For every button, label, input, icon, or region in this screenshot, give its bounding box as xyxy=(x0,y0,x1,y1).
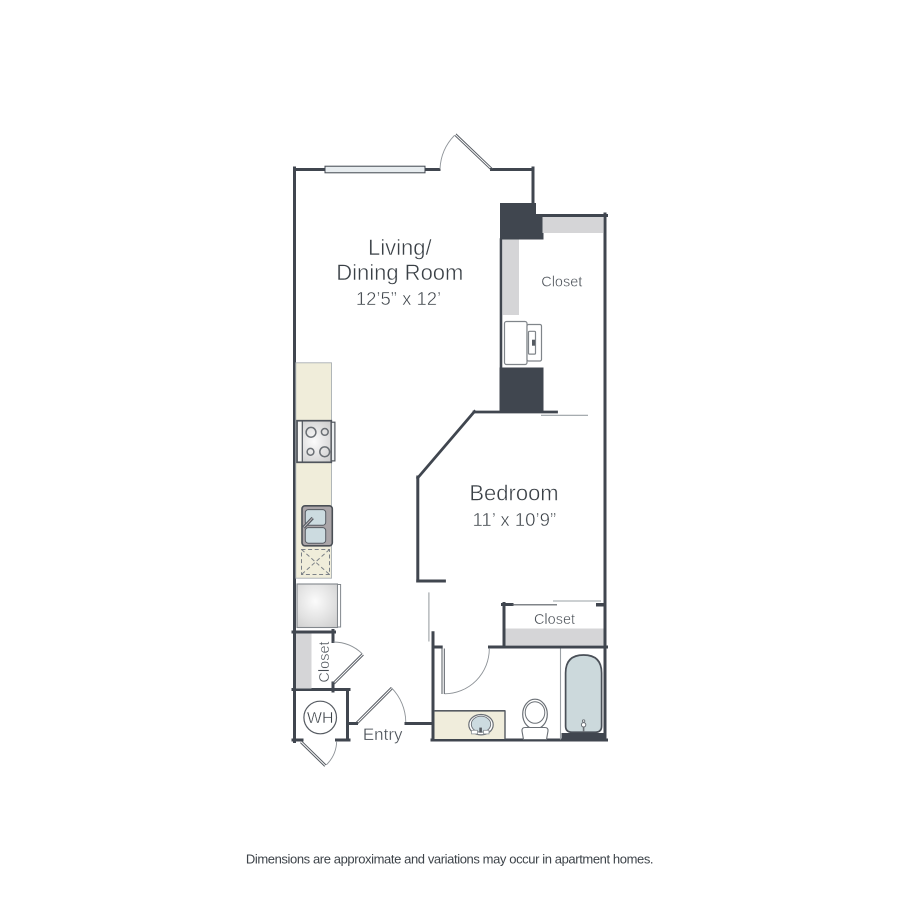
svg-text:Closet: Closet xyxy=(534,612,575,628)
svg-text:Closet: Closet xyxy=(317,641,333,682)
svg-text:Entry: Entry xyxy=(363,725,403,744)
svg-text:Bedroom: Bedroom xyxy=(469,481,558,506)
svg-text:11’ x 10’9”: 11’ x 10’9” xyxy=(472,509,556,530)
svg-text:Dimensions are approximate and: Dimensions are approximate and variation… xyxy=(246,852,653,867)
svg-text:Closet: Closet xyxy=(541,275,582,291)
svg-text:Living/: Living/ xyxy=(368,235,432,260)
svg-text:WH: WH xyxy=(307,710,334,727)
svg-text:Dining Room: Dining Room xyxy=(336,260,463,285)
svg-text:12’5” x 12’: 12’5” x 12’ xyxy=(356,288,441,309)
